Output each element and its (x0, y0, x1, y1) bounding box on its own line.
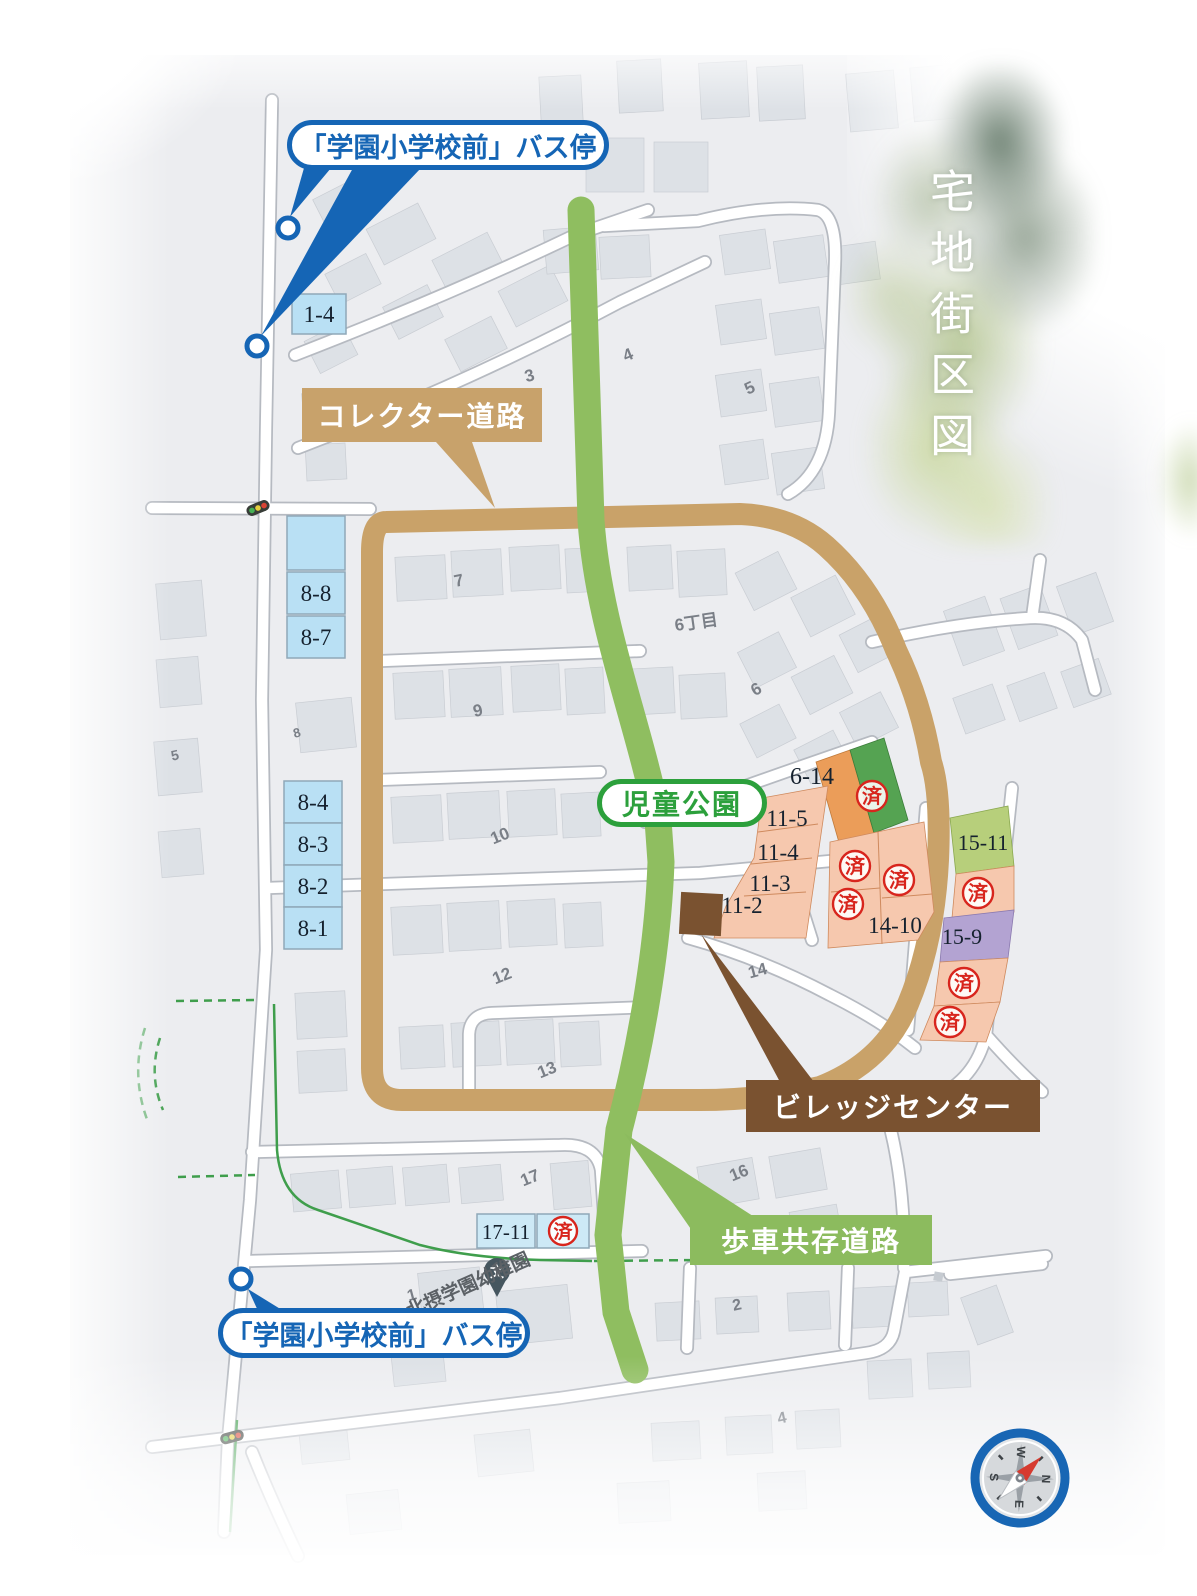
building (654, 142, 708, 192)
building (559, 1021, 601, 1067)
lot-label: 11-2 (721, 893, 762, 918)
sold-stamp: 済 (840, 851, 870, 881)
building (550, 1160, 592, 1209)
lot-label: 8-2 (298, 874, 329, 899)
bus-stop-label-top: 「学園小学校前」バス停 (287, 120, 609, 170)
children-park-label: 児童公園 (597, 779, 767, 827)
lot-label: 14-10 (868, 913, 922, 938)
village-center-building (679, 892, 723, 936)
svg-text:済: 済 (845, 854, 866, 878)
building (511, 664, 561, 712)
sold-stamp: 済 (884, 865, 914, 895)
building (565, 667, 605, 715)
building (399, 1025, 445, 1069)
svg-text:済: 済 (862, 784, 883, 808)
building (719, 229, 770, 275)
building (757, 65, 806, 121)
svg-text:済: 済 (553, 1220, 573, 1243)
page-title: 宅地街区図 (916, 168, 981, 508)
building (509, 545, 561, 592)
building (769, 307, 824, 356)
collector-road-label: コレクター道路 (302, 388, 542, 442)
sold-stamp: 済 (857, 781, 887, 811)
compass-e: E (1012, 1500, 1026, 1508)
lot-label: 1-4 (304, 302, 335, 327)
building (927, 1351, 971, 1389)
building (561, 792, 601, 838)
building (296, 697, 357, 753)
building (158, 828, 204, 877)
building (617, 1481, 671, 1524)
building (154, 738, 203, 796)
building (715, 299, 766, 345)
lot-label: 8-1 (298, 916, 329, 941)
bus-stop-label-bottom: 「学園小学校前」バス停 (218, 1308, 530, 1358)
building (290, 1170, 341, 1212)
building (699, 61, 750, 119)
compass-n: N (1039, 1474, 1053, 1483)
lot-label: 8-8 (301, 581, 332, 606)
bus-stop-marker (278, 218, 298, 238)
building (346, 1166, 395, 1208)
building (295, 991, 347, 1040)
building (617, 59, 664, 113)
building (787, 1291, 831, 1331)
sold-stamp: 済 (949, 968, 979, 998)
building (679, 673, 727, 719)
compass-s: S (987, 1473, 1001, 1481)
compass-rose: N E S W (958, 1416, 1082, 1540)
building (391, 795, 443, 844)
lot-label: 11-5 (766, 806, 807, 831)
building (773, 235, 828, 284)
sold-stamp: 済 (833, 889, 863, 919)
building (297, 1049, 347, 1093)
building (507, 789, 557, 837)
building (599, 235, 651, 280)
building (677, 549, 727, 597)
village-center-label: ビレッジセンター (746, 1080, 1040, 1132)
bus-stop-marker (247, 336, 267, 356)
building (391, 905, 443, 956)
svg-text:済: 済 (940, 1010, 961, 1034)
svg-text:済: 済 (968, 881, 989, 905)
compass-w: W (1014, 1446, 1028, 1458)
building (795, 1409, 841, 1449)
svg-text:済: 済 (954, 971, 975, 995)
building (395, 555, 447, 602)
building (474, 1429, 534, 1477)
bus-stop-marker (231, 1269, 251, 1289)
residential-block-map: 1-4 8-8 8-7 8-4 8-3 8-2 8-1 6-14 (0, 0, 1197, 1596)
lot-label: 8-7 (301, 625, 332, 650)
sold-stamp: 済 (549, 1217, 577, 1245)
building (346, 1489, 402, 1534)
lot-unlabeled (287, 516, 345, 570)
building (910, 64, 959, 122)
svg-text:済: 済 (889, 868, 910, 892)
building (507, 899, 557, 947)
lot-label: 15-11 (958, 830, 1009, 855)
building (651, 1421, 701, 1461)
lot-label: 17-11 (482, 1220, 530, 1244)
building (539, 75, 583, 123)
building (757, 1471, 807, 1511)
building (715, 369, 766, 417)
lot-label: 8-4 (298, 790, 329, 815)
building (867, 1359, 913, 1399)
building (402, 1164, 449, 1206)
lot-label: 8-3 (298, 832, 329, 857)
lot-label: 15-9 (942, 924, 982, 949)
building (769, 1148, 828, 1198)
building (627, 545, 673, 591)
sold-stamp: 済 (963, 878, 993, 908)
building (156, 580, 207, 640)
building (725, 1415, 773, 1455)
building (719, 439, 768, 485)
building (563, 902, 603, 948)
building (505, 1019, 555, 1065)
sold-stamp: 済 (935, 1007, 965, 1037)
building (907, 1281, 949, 1317)
building (447, 901, 501, 952)
building (846, 70, 899, 132)
shared-road-label: 歩車共存道路 (690, 1215, 932, 1265)
svg-text:済: 済 (838, 892, 859, 916)
building (769, 377, 825, 428)
lot-label: 11-4 (757, 840, 799, 865)
building (459, 1164, 504, 1204)
building (393, 671, 445, 720)
building (156, 656, 202, 707)
